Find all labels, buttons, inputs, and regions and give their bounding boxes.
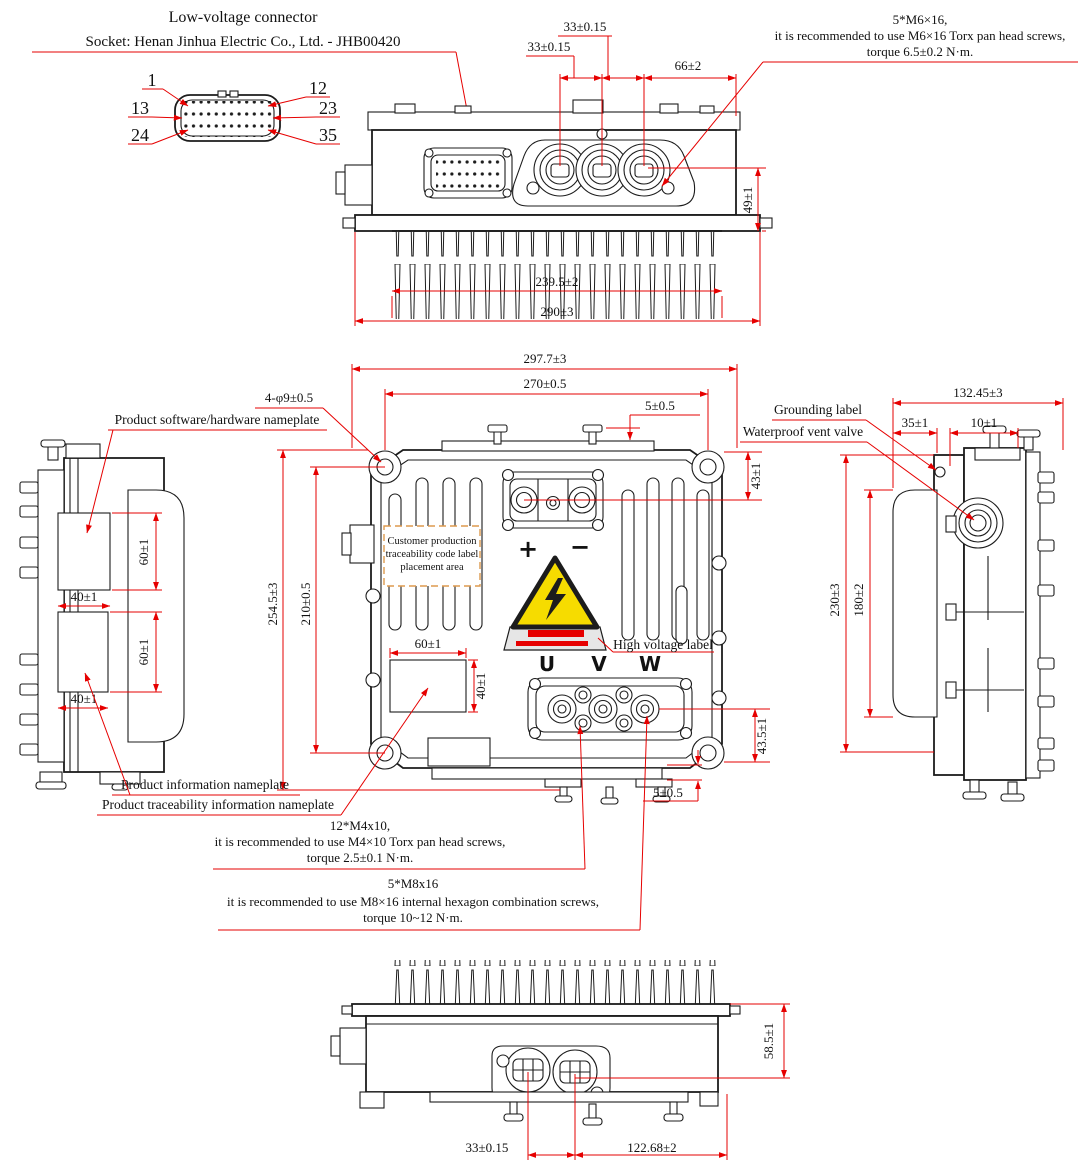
dim-40-center: 40±1 [473, 673, 488, 700]
right-view-cover [893, 490, 937, 717]
main-back-view: Customer production traceability code la… [255, 351, 770, 804]
dim-5-bottom: 5±0.5 [653, 785, 683, 800]
software-nameplate-callout: Product software/hardware nameplate [115, 412, 320, 427]
m8-note-line3: torque 10~12 N·m. [363, 910, 463, 925]
lv-connector-title: Low-voltage connector [169, 9, 319, 26]
left-view-bolts [20, 482, 38, 755]
info-nameplate-callout: Product information nameplate [121, 777, 289, 792]
high-voltage-label-callout: High voltage label [613, 637, 713, 652]
pin-24-label: 24 [131, 125, 149, 145]
dim-297-7: 297.7±3 [524, 351, 567, 366]
dim-180: 180±2 [851, 583, 866, 616]
dim-230: 230±3 [827, 583, 842, 616]
m8-note-line1: 5*M8x16 [388, 876, 439, 891]
dim-239-5: 239.5±2 [536, 274, 579, 289]
pin-23-label: 23 [319, 98, 337, 118]
dim-49: 49±1 [740, 187, 755, 214]
dc-plus-mark: + [518, 535, 538, 563]
pin-13-label: 13 [131, 98, 149, 118]
dim-122-68: 122.68±2 [627, 1140, 676, 1155]
grounding-screw [935, 467, 945, 477]
phase-w-mark: W [639, 652, 661, 676]
phase-v-mark: V [591, 652, 607, 676]
dim-33-bottom: 33±0.15 [466, 1140, 509, 1155]
dim-5-top: 5±0.5 [645, 398, 675, 413]
vent-valve-callout: Waterproof vent valve [743, 424, 863, 439]
left-side-view: 60±1 40±1 60±1 40±1 Product software/har… [20, 412, 428, 815]
dim-43-5: 43.5±1 [754, 718, 769, 754]
trace-area-line3: placement area [400, 562, 464, 573]
dim-60-left-lower: 60±1 [136, 639, 151, 666]
trace-nameplate-rect [390, 660, 466, 712]
dim-132-45: 132.45±3 [953, 385, 1002, 400]
dim-33-upper: 33±0.15 [564, 19, 607, 34]
m4-note-line3: torque 2.5±0.1 N·m. [307, 850, 413, 865]
m6-note-line1: 5*M6×16, [893, 12, 948, 27]
dim-33-lower: 33±0.15 [528, 39, 571, 54]
m4-note-line2: it is recommended to use M4×10 Torx pan … [215, 834, 506, 849]
dim-66: 66±2 [675, 58, 702, 73]
front-elevation-view: 33±0.15 33±0.15 66±2 49±1 239.5±2 290±3 … [336, 12, 1078, 326]
right-side-view: 132.45±3 35±1 10±1 230±3 180±2 Grounding… [740, 385, 1063, 801]
pin-12-label: 12 [309, 78, 327, 98]
info-nameplate-rect [58, 612, 108, 692]
dim-60-center: 60±1 [415, 636, 442, 651]
drawing-canvas: Low-voltage connector Socket: Henan Jinh… [0, 0, 1085, 1170]
heatsink-fins-bottom [388, 960, 722, 1004]
dim-40-left-lower: 40±1 [71, 691, 98, 706]
dim-4-phi9: 4-φ9±0.5 [265, 390, 313, 405]
dim-254-5: 254.5±3 [265, 583, 280, 626]
m6-note-line3: torque 6.5±0.2 N·m. [867, 44, 973, 59]
pin-1-label: 1 [148, 70, 157, 90]
m8-note-line2: it is recommended to use M8×16 internal … [227, 894, 599, 909]
dc-minus-mark: − [570, 533, 590, 561]
software-nameplate-rect [58, 513, 110, 590]
dim-58-5: 58.5±1 [761, 1023, 776, 1059]
dim-290: 290±3 [540, 304, 573, 319]
bottom-view: 58.5±1 33±0.15 122.68±2 [331, 960, 790, 1160]
dim-60-left-upper: 60±1 [136, 539, 151, 566]
trace-area-line1: Customer production [388, 536, 478, 547]
trace-area-line2: traceability code label [386, 549, 479, 560]
m4-note-line1: 12*M4x10, [330, 818, 390, 833]
grounding-label-callout: Grounding label [774, 402, 862, 417]
torx-screw [527, 182, 539, 194]
lv-connector-socket-subtitle: Socket: Henan Jinhua Electric Co., Ltd. … [86, 34, 401, 50]
dim-43: 43±1 [748, 463, 763, 490]
m6-note-line2: it is recommended to use M6×16 Torx pan … [775, 28, 1066, 43]
trace-nameplate-callout: Product traceability information namepla… [102, 797, 334, 812]
dim-210: 210±0.5 [298, 583, 313, 626]
pin-35-label: 35 [319, 125, 337, 145]
lv-connector-pins [184, 101, 272, 137]
engineering-drawing-page: Low-voltage connector Socket: Henan Jinh… [0, 0, 1085, 1170]
dim-35: 35±1 [902, 415, 929, 430]
dim-40-left-upper: 40±1 [71, 589, 98, 604]
dim-10: 10±1 [971, 415, 998, 430]
phase-u-mark: U [539, 652, 555, 676]
dim-270: 270±0.5 [524, 376, 567, 391]
